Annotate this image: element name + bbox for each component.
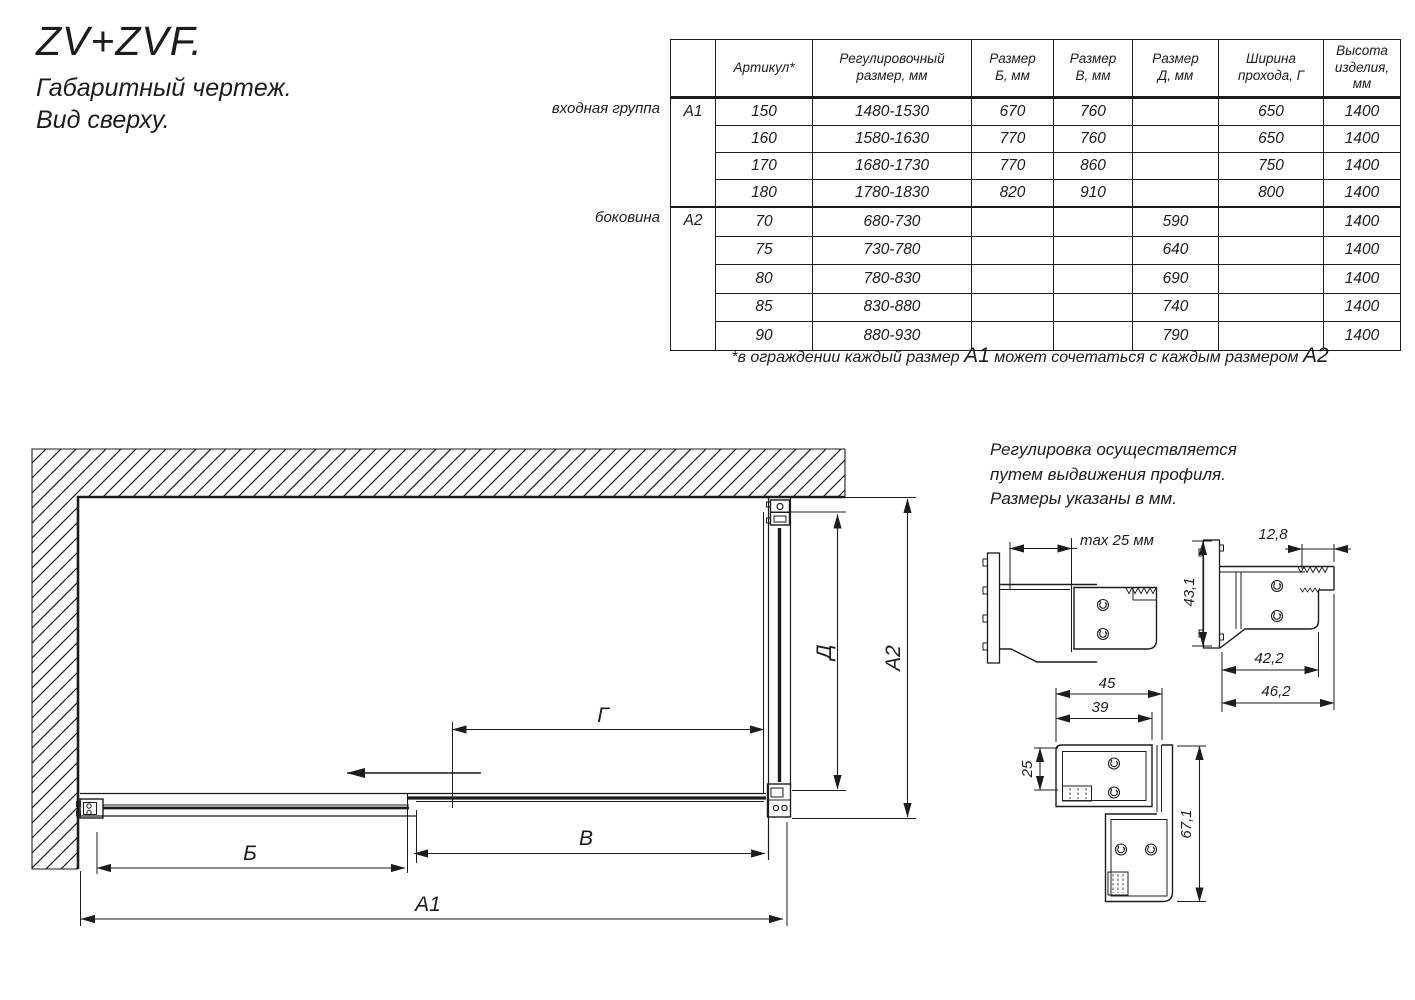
detail-dim-422: 42,2 xyxy=(1254,650,1284,667)
corner-profile xyxy=(768,784,791,817)
detail-dim-45: 45 xyxy=(1099,675,1116,692)
dim-label-d: Д xyxy=(813,644,836,661)
dim-label-g: Г xyxy=(597,704,610,727)
wall-hatched-area xyxy=(32,449,845,869)
detail-dim-max25: max 25 мм xyxy=(1080,532,1154,549)
dim-label-v: В xyxy=(579,827,593,850)
detail-dim-431: 43,1 xyxy=(1181,577,1198,606)
detail-dim-671: 67,1 xyxy=(1178,809,1195,838)
detail-dim-39: 39 xyxy=(1092,699,1109,716)
detail-dim-128: 12,8 xyxy=(1258,526,1288,543)
detail-dim-462: 46,2 xyxy=(1261,683,1291,700)
entrance-group xyxy=(77,773,767,873)
dim-label-a1: А1 xyxy=(413,893,441,916)
dim-label-a2: А2 xyxy=(882,645,905,673)
wall-profile xyxy=(77,799,104,818)
detail-wall-profile xyxy=(983,538,1157,663)
dim-label-b: Б xyxy=(243,842,257,865)
detail-corner-profile xyxy=(1034,688,1206,902)
drawing-page: { "title": { "product": "ZV+ZVF.", "subt… xyxy=(0,0,1415,1000)
technical-drawing-canvas: Г Д А2 Б В А1 max 25 мм xyxy=(0,0,1415,1000)
side-panel xyxy=(764,497,791,860)
detail-dim-25: 25 xyxy=(1019,760,1036,778)
